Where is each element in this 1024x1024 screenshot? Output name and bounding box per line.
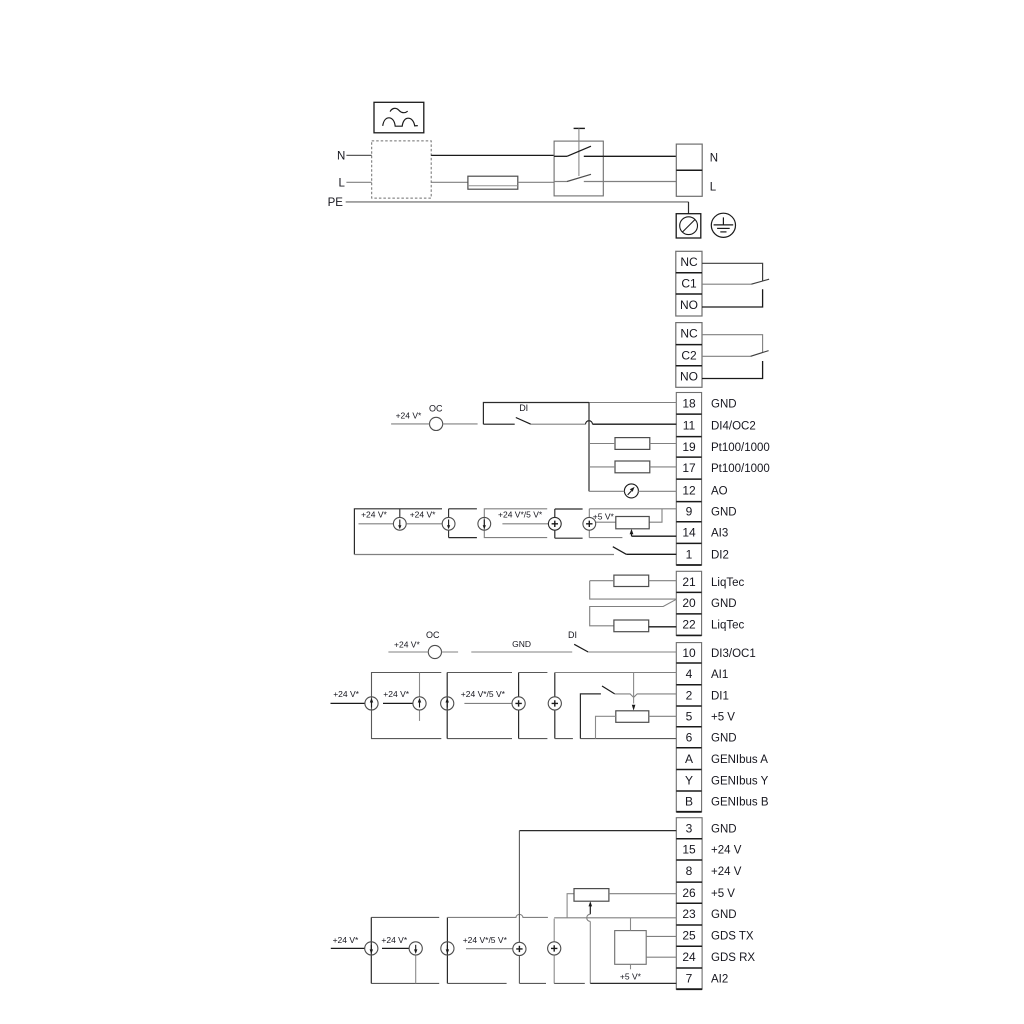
svg-text:+24 V*/5 V*: +24 V*/5 V* [463,935,508,945]
svg-text:+5 V*: +5 V* [593,511,615,521]
svg-text:+24 V*: +24 V* [394,640,420,650]
svg-text:14: 14 [682,526,696,540]
svg-text:GND: GND [512,639,531,649]
svg-text:+5 V: +5 V [711,888,735,900]
svg-text:LiqTec: LiqTec [711,577,744,589]
svg-text:OC: OC [426,630,440,640]
svg-text:GENIbus A: GENIbus A [711,754,768,766]
svg-text:19: 19 [682,440,696,454]
svg-text:DI: DI [519,403,528,413]
svg-text:24: 24 [682,950,696,964]
svg-text:Pt100/1000: Pt100/1000 [711,442,770,454]
svg-text:1: 1 [686,547,693,561]
svg-text:C2: C2 [681,348,697,362]
svg-text:DI4/OC2: DI4/OC2 [711,420,756,432]
svg-text:AO: AO [711,485,728,497]
svg-text:GND: GND [711,823,737,835]
svg-text:+24 V*: +24 V* [396,410,422,420]
svg-text:GND: GND [711,398,737,410]
svg-text:A: A [685,752,693,766]
svg-text:+24 V*/5 V*: +24 V*/5 V* [498,510,543,520]
svg-text:N: N [337,150,345,162]
svg-text:C1: C1 [681,277,697,291]
svg-text:17: 17 [682,461,696,475]
svg-text:2: 2 [686,689,693,703]
svg-text:11: 11 [683,418,696,432]
svg-text:GND: GND [711,507,737,519]
svg-text:10: 10 [682,646,696,660]
svg-text:+24 V: +24 V [711,866,742,878]
svg-text:DI2: DI2 [711,549,729,561]
svg-text:OC: OC [429,403,443,413]
svg-text:22: 22 [682,618,696,632]
svg-text:GDS RX: GDS RX [711,952,755,964]
svg-text:AI3: AI3 [711,528,728,540]
svg-text:Pt100/1000: Pt100/1000 [711,463,770,475]
svg-text:7: 7 [686,972,693,986]
svg-text:+24 V: +24 V [711,845,742,857]
svg-text:NO: NO [680,370,698,384]
svg-text:+24 V*: +24 V* [361,510,387,520]
svg-text:DI3/OC1: DI3/OC1 [711,648,756,660]
svg-text:6: 6 [686,730,693,744]
svg-text:23: 23 [682,907,696,921]
svg-text:GDS TX: GDS TX [711,931,754,943]
svg-text:+24 V*: +24 V* [333,689,359,699]
svg-text:Y: Y [685,773,693,787]
svg-text:AI1: AI1 [711,669,728,681]
svg-text:NC: NC [680,255,698,269]
svg-text:GND: GND [711,732,737,744]
svg-text:AI2: AI2 [711,974,728,986]
svg-text:3: 3 [686,821,693,835]
svg-text:+5 V: +5 V [711,712,735,724]
svg-text:9: 9 [686,505,693,519]
svg-text:20: 20 [682,596,696,610]
svg-text:26: 26 [682,886,696,900]
svg-text:DI1: DI1 [711,691,729,703]
svg-text:NC: NC [680,327,698,341]
svg-text:21: 21 [682,575,696,589]
svg-text:25: 25 [682,929,696,943]
svg-text:12: 12 [682,483,696,497]
svg-text:+24 V*: +24 V* [333,935,359,945]
svg-text:GND: GND [711,598,737,610]
svg-text:15: 15 [682,843,696,857]
svg-text:+5 V*: +5 V* [620,972,642,982]
svg-text:DI: DI [568,630,577,640]
svg-text:PE: PE [328,197,344,209]
svg-text:+24 V*: +24 V* [410,510,436,520]
svg-text:L: L [710,181,717,193]
svg-text:GENIbus Y: GENIbus Y [711,775,769,787]
svg-text:NO: NO [680,298,698,312]
svg-text:LiqTec: LiqTec [711,620,744,632]
svg-text:L: L [339,177,346,189]
svg-text:GND: GND [711,909,737,921]
svg-text:8: 8 [686,864,693,878]
svg-text:B: B [685,795,693,809]
svg-text:+24 V*: +24 V* [383,689,409,699]
svg-text:+24 V*: +24 V* [381,935,407,945]
svg-text:N: N [710,153,718,165]
svg-text:4: 4 [686,667,693,681]
svg-text:+24 V*/5 V*: +24 V*/5 V* [461,689,506,699]
svg-text:GENIbus B: GENIbus B [711,797,769,809]
svg-text:5: 5 [686,710,693,724]
svg-text:18: 18 [682,396,696,410]
